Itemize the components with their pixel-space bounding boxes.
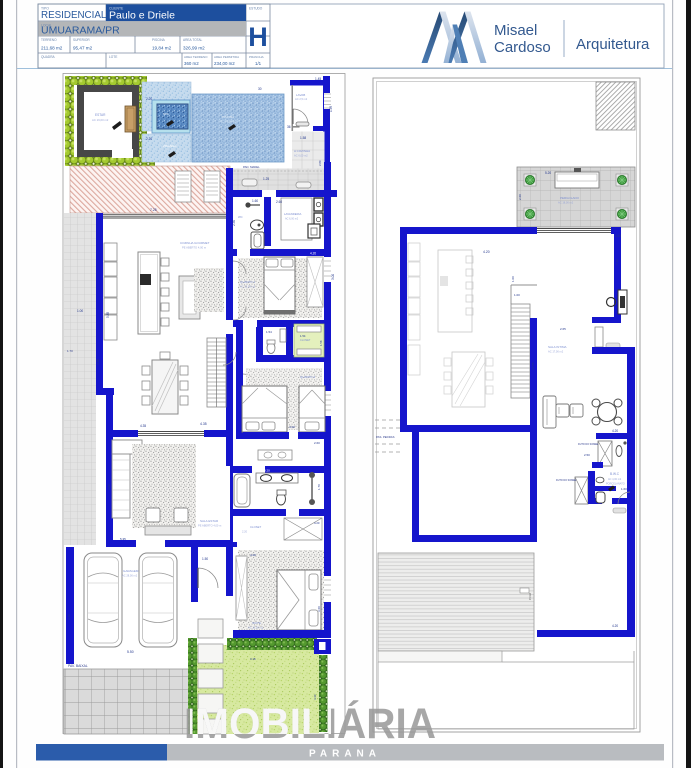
svg-text:1.50: 1.50 bbox=[202, 557, 208, 561]
svg-text:1.00: 1.00 bbox=[511, 276, 515, 282]
svg-text:PAD. MADEL: PAD. MADEL bbox=[243, 165, 260, 169]
svg-text:AC 18,00 m2: AC 18,00 m2 bbox=[558, 201, 574, 205]
svg-text:AC 16,00 m2: AC 16,00 m2 bbox=[248, 626, 264, 630]
svg-text:5.50: 5.50 bbox=[127, 650, 134, 654]
svg-text:360 m2: 360 m2 bbox=[184, 61, 199, 66]
svg-text:PARANA: PARANA bbox=[309, 749, 381, 760]
svg-text:1.58: 1.58 bbox=[300, 136, 306, 140]
svg-text:3.60: 3.60 bbox=[317, 606, 321, 612]
svg-text:1.95: 1.95 bbox=[329, 106, 333, 112]
svg-text:1.25: 1.25 bbox=[263, 177, 269, 181]
svg-text:1.58: 1.58 bbox=[319, 340, 323, 346]
svg-text:5.85: 5.85 bbox=[106, 312, 110, 318]
svg-text:4.20: 4.20 bbox=[264, 469, 270, 473]
svg-text:234,00 m2: 234,00 m2 bbox=[214, 61, 235, 66]
svg-text:PRAINHA: PRAINHA bbox=[163, 144, 176, 148]
svg-text:DUTO DO SOMEE: DUTO DO SOMEE bbox=[556, 479, 577, 482]
svg-text:1.70: 1.70 bbox=[67, 349, 73, 353]
svg-text:3.18: 3.18 bbox=[250, 657, 256, 661]
svg-text:PISCINA: PISCINA bbox=[152, 38, 166, 42]
svg-text:Arquitetura: Arquitetura bbox=[576, 36, 650, 53]
svg-text:AC 4,00 m2: AC 4,00 m2 bbox=[608, 478, 622, 481]
svg-text:TERRENO: TERRENO bbox=[41, 38, 57, 42]
svg-text:4.35: 4.35 bbox=[200, 422, 207, 426]
svg-text:AREA TERRENO: AREA TERRENO bbox=[184, 55, 208, 59]
svg-text:2.60: 2.60 bbox=[276, 200, 282, 204]
svg-text:2.20: 2.20 bbox=[242, 530, 248, 534]
svg-text:2.65: 2.65 bbox=[560, 327, 566, 331]
svg-text:2.20: 2.20 bbox=[146, 97, 152, 101]
svg-text:4.20: 4.20 bbox=[483, 250, 490, 254]
svg-text:5.10: 5.10 bbox=[615, 259, 619, 265]
svg-text:1.70: 1.70 bbox=[317, 484, 321, 490]
svg-text:QUADRA: QUADRA bbox=[41, 55, 56, 59]
svg-text:RESIDENCIAL: RESIDENCIAL bbox=[41, 10, 107, 21]
svg-text:SALA ESTAR: SALA ESTAR bbox=[200, 519, 219, 523]
svg-text:QUARTO 2: QUARTO 2 bbox=[300, 375, 316, 379]
svg-text:CLOSET: CLOSET bbox=[250, 525, 261, 529]
svg-text:4.20: 4.20 bbox=[289, 425, 295, 429]
svg-text:3.75: 3.75 bbox=[628, 519, 632, 525]
svg-text:211,68 m2: 211,68 m2 bbox=[41, 46, 63, 51]
svg-text:4.35: 4.35 bbox=[140, 424, 146, 428]
svg-text:3.10: 3.10 bbox=[628, 456, 632, 462]
svg-text:CLOSET: CLOSET bbox=[300, 338, 311, 342]
svg-text:SALA INTIMA: SALA INTIMA bbox=[548, 345, 567, 349]
svg-text:PISCINA: PISCINA bbox=[222, 115, 234, 119]
svg-text:1.00: 1.00 bbox=[77, 309, 83, 313]
svg-text:PE ABERTO 4,00 m: PE ABERTO 4,00 m bbox=[182, 246, 207, 250]
svg-text:30: 30 bbox=[258, 87, 262, 91]
svg-text:4.43: 4.43 bbox=[615, 234, 621, 238]
svg-text:1.00: 1.00 bbox=[514, 293, 520, 297]
svg-text:326,99 m2: 326,99 m2 bbox=[183, 46, 205, 51]
svg-text:1.60: 1.60 bbox=[252, 199, 258, 203]
svg-text:WC: WC bbox=[238, 215, 243, 219]
svg-text:A COZINHA: A COZINHA bbox=[294, 149, 310, 153]
svg-text:2.80: 2.80 bbox=[318, 160, 322, 166]
svg-text:2.60: 2.60 bbox=[314, 441, 320, 445]
svg-text:AC 6,00 m2: AC 6,00 m2 bbox=[294, 154, 308, 158]
svg-text:4.90: 4.90 bbox=[96, 359, 100, 365]
svg-text:1.54: 1.54 bbox=[266, 330, 272, 334]
svg-text:4.90: 4.90 bbox=[107, 484, 111, 490]
svg-text:Cardoso: Cardoso bbox=[494, 39, 551, 56]
svg-text:SUITE: SUITE bbox=[252, 621, 261, 625]
svg-text:4.20: 4.20 bbox=[612, 624, 618, 628]
svg-text:PRANCHA: PRANCHA bbox=[249, 55, 264, 59]
svg-text:ESTAR: ESTAR bbox=[95, 113, 106, 117]
svg-text:1/1: 1/1 bbox=[255, 61, 262, 66]
svg-text:PAS. PEDRAS: PAS. PEDRAS bbox=[376, 435, 395, 439]
svg-text:QUARTO 1: QUARTO 1 bbox=[240, 280, 256, 284]
svg-text:1.54: 1.54 bbox=[300, 334, 306, 338]
svg-text:AC 6,00 m2: AC 6,00 m2 bbox=[285, 218, 299, 221]
svg-text:4.30: 4.30 bbox=[67, 614, 71, 620]
svg-text:PORCELANATO: PORCELANATO bbox=[606, 483, 625, 486]
svg-text:19,84 m2: 19,84 m2 bbox=[152, 46, 172, 51]
svg-text:UMUARAMA/PR: UMUARAMA/PR bbox=[41, 25, 120, 37]
svg-text:SUPERIOR: SUPERIOR bbox=[73, 38, 90, 42]
svg-text:4.20: 4.20 bbox=[314, 521, 320, 525]
svg-text:Misael: Misael bbox=[494, 22, 537, 39]
svg-text:AC 28,00 m2: AC 28,00 m2 bbox=[122, 574, 138, 578]
svg-text:7.25: 7.25 bbox=[150, 208, 157, 212]
svg-text:Paulo e Driele: Paulo e Driele bbox=[109, 10, 175, 22]
svg-text:LAVANDERIA: LAVANDERIA bbox=[284, 212, 301, 216]
svg-text:2.20: 2.20 bbox=[146, 137, 152, 141]
svg-text:AC 12,00 m2: AC 12,00 m2 bbox=[240, 285, 256, 289]
svg-text:PAV. BAIXAL: PAV. BAIXAL bbox=[68, 664, 88, 668]
svg-text:18.55: 18.55 bbox=[531, 362, 535, 370]
svg-text:2.60: 2.60 bbox=[518, 194, 522, 200]
svg-text:AC 19,84 m2: AC 19,84 m2 bbox=[220, 120, 237, 124]
svg-text:GARAGEM: GARAGEM bbox=[123, 569, 139, 573]
svg-text:95,47 m2: 95,47 m2 bbox=[73, 46, 93, 51]
svg-text:5.20: 5.20 bbox=[545, 171, 551, 175]
svg-text:P.CAll: P.CAll bbox=[528, 593, 532, 600]
svg-text:2.50: 2.50 bbox=[232, 220, 236, 226]
svg-text:36: 36 bbox=[287, 125, 291, 129]
svg-text:AC 2,5 m2: AC 2,5 m2 bbox=[295, 97, 308, 101]
svg-text:3.00: 3.00 bbox=[331, 274, 335, 280]
svg-text:4.20: 4.20 bbox=[250, 553, 256, 557]
svg-text:ESTUDO: ESTUDO bbox=[249, 7, 263, 11]
svg-text:PERGOLADO: PERGOLADO bbox=[560, 196, 580, 200]
svg-text:PE ABERTO 4,00 m: PE ABERTO 4,00 m bbox=[198, 524, 221, 528]
svg-text:LOTE: LOTE bbox=[109, 55, 117, 59]
svg-text:4.20: 4.20 bbox=[612, 429, 618, 433]
svg-text:1.60: 1.60 bbox=[621, 487, 627, 491]
svg-text:LAVAB: LAVAB bbox=[296, 93, 305, 97]
svg-text:2.40: 2.40 bbox=[288, 346, 292, 352]
svg-text:SPA: SPA bbox=[163, 112, 169, 116]
svg-text:DUTO DO SOMEE: DUTO DO SOMEE bbox=[578, 443, 599, 446]
svg-text:1.45: 1.45 bbox=[315, 77, 321, 81]
svg-text:COZINHA GOURMET: COZINHA GOURMET bbox=[180, 241, 210, 245]
svg-text:AC 17,00 m2: AC 17,00 m2 bbox=[548, 350, 564, 354]
svg-text:AREA PERMITIDA: AREA PERMITIDA bbox=[214, 55, 239, 59]
svg-text:AREA TOTAL: AREA TOTAL bbox=[183, 38, 203, 42]
svg-text:B.W.C: B.W.C bbox=[610, 472, 620, 476]
svg-text:2.50: 2.50 bbox=[584, 453, 590, 457]
svg-text:AC 16,00 m2: AC 16,00 m2 bbox=[92, 118, 109, 122]
svg-text:4.20: 4.20 bbox=[310, 252, 316, 256]
svg-text:H: H bbox=[248, 22, 268, 52]
